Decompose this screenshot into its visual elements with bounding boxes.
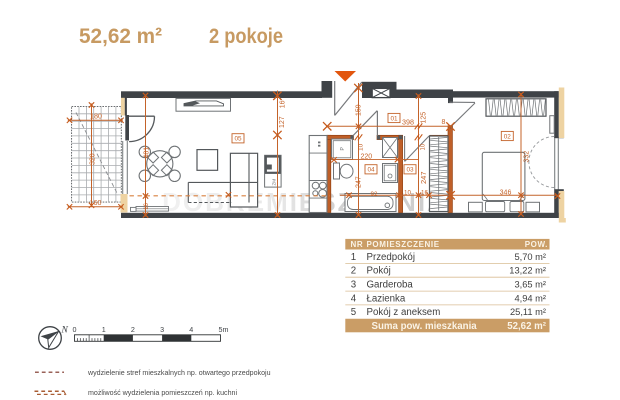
svg-text:POMIESZCZENIE: POMIESZCZENIE: [367, 240, 440, 249]
svg-text:320: 320: [89, 153, 96, 165]
svg-text:0: 0: [73, 325, 77, 334]
svg-text:wydzielenie stref mieszkalnyc: wydzielenie stref mieszkalnych np. otwar…: [87, 369, 271, 377]
svg-text:247: 247: [355, 176, 362, 188]
svg-text:5: 5: [351, 307, 356, 318]
svg-text:52,62 m²: 52,62 m²: [507, 321, 547, 332]
svg-text:Przedpokój: Przedpokój: [367, 252, 415, 263]
svg-text:13,22 m²: 13,22 m²: [509, 266, 546, 276]
svg-text:02: 02: [504, 133, 512, 140]
svg-text:3: 3: [160, 325, 164, 334]
svg-text:346: 346: [500, 189, 512, 196]
svg-text:N: N: [61, 326, 69, 336]
svg-text:Pokój z aneksem: Pokój z aneksem: [367, 307, 441, 318]
svg-text:4: 4: [351, 293, 357, 304]
svg-text:52,62 m²: 52,62 m²: [79, 24, 162, 48]
svg-text:127: 127: [279, 116, 286, 128]
svg-text:5m: 5m: [219, 325, 229, 334]
svg-text:2: 2: [131, 325, 135, 334]
svg-text:03: 03: [406, 167, 414, 174]
svg-text:332: 332: [523, 151, 530, 163]
svg-text:NR: NR: [351, 240, 364, 249]
svg-text:Suma pow. mieszkania: Suma pow. mieszkania: [372, 321, 478, 332]
svg-text:3,65 m²: 3,65 m²: [514, 280, 546, 290]
svg-text:8: 8: [442, 119, 446, 126]
svg-text:398: 398: [402, 118, 414, 127]
svg-text:możliwość wydzielenia pomieszc: możliwość wydzielenia pomieszczeń np. ku…: [88, 389, 237, 397]
svg-text:220: 220: [361, 154, 373, 161]
svg-text:8: 8: [449, 190, 453, 197]
svg-text:10: 10: [358, 143, 365, 151]
svg-text:247: 247: [419, 171, 428, 184]
svg-text:1: 1: [351, 252, 356, 263]
svg-text:92: 92: [371, 191, 378, 198]
svg-text:5,70 m²: 5,70 m²: [514, 252, 546, 262]
svg-text:ZM: ZM: [272, 179, 277, 186]
svg-text:159: 159: [355, 104, 362, 116]
svg-text:125: 125: [420, 112, 427, 124]
svg-text:2 pokoje: 2 pokoje: [209, 24, 283, 48]
svg-text:481: 481: [143, 147, 150, 159]
svg-text:25,11 m²: 25,11 m²: [510, 307, 546, 317]
svg-text:01: 01: [390, 115, 398, 122]
svg-text:10: 10: [404, 189, 411, 196]
svg-text:1: 1: [102, 325, 106, 334]
svg-text:POW.: POW.: [525, 240, 548, 249]
svg-text:04: 04: [367, 167, 375, 174]
svg-text:2: 2: [351, 266, 356, 277]
svg-text:16: 16: [280, 100, 287, 108]
svg-text:Pokój: Pokój: [367, 266, 391, 277]
svg-text:4: 4: [189, 325, 193, 334]
svg-text:10: 10: [420, 143, 426, 150]
svg-text:Łazienka: Łazienka: [367, 293, 406, 304]
svg-text:4,94 m²: 4,94 m²: [514, 293, 546, 303]
svg-text:16: 16: [144, 202, 150, 209]
svg-text:Garderoba: Garderoba: [367, 280, 414, 291]
svg-text:16: 16: [421, 189, 428, 196]
svg-text:05: 05: [234, 136, 242, 143]
svg-text:3: 3: [351, 280, 356, 291]
